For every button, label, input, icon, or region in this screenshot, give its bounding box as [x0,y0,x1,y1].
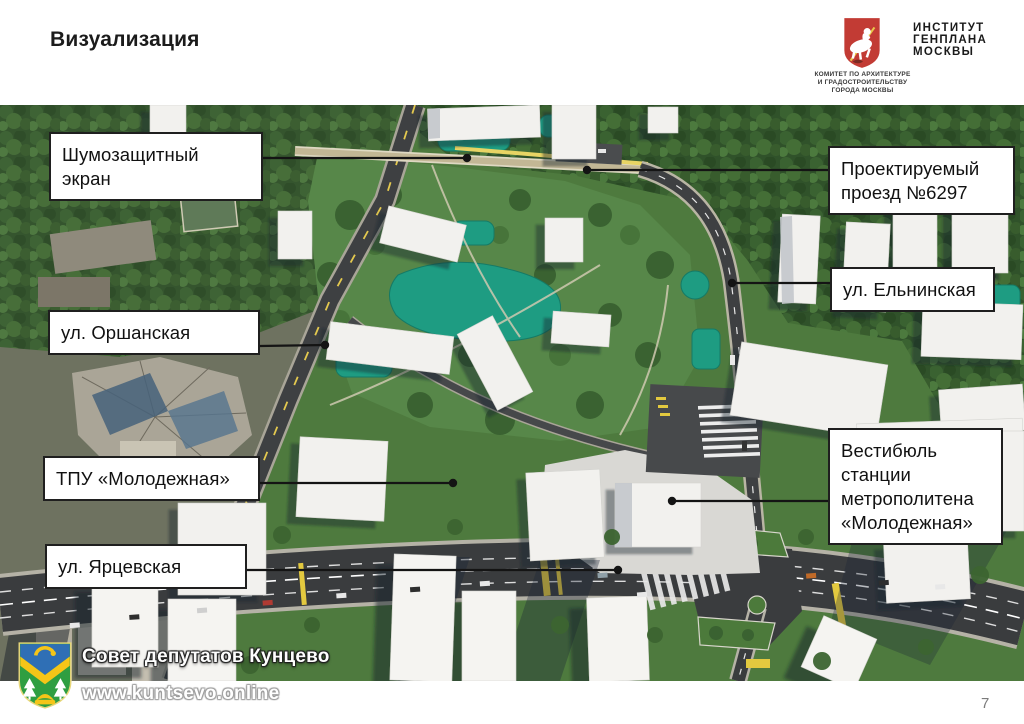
page-title: Визуализация [50,28,200,52]
website-url: www.kuntsevo.online [82,683,279,705]
map-visualization: Шумозащитный экран Проектируемый проезд … [0,105,1024,681]
slide: Визуализация КОМИТЕТ ПО АРХИТЕКТУРЕ И ГР… [0,0,1024,724]
moscow-coat-of-arms-icon [842,16,882,70]
callout-metro-vestibule: Вестибюль станции метрополитена «Молодеж… [828,428,1003,545]
header-logos: КОМИТЕТ ПО АРХИТЕКТУРЕ И ГРАДОСТРОИТЕЛЬС… [800,14,1010,98]
institute-genplan-logo-text: ИНСТИТУТ ГЕНПЛАНА МОСКВЫ [913,22,987,58]
callout-orshanskaya-street: ул. Оршанская [48,310,260,355]
council-title: Совет депутатов Кунцево [82,646,330,668]
callout-yartsevskaya-street: ул. Ярцевская [45,544,247,589]
committee-caption: КОМИТЕТ ПО АРХИТЕКТУРЕ И ГРАДОСТРОИТЕЛЬС… [790,71,935,95]
page-number: 7 [981,695,989,712]
callout-noise-screen: Шумозащитный экран [49,132,263,201]
callout-projected-driveway: Проектируемый проезд №6297 [828,146,1015,215]
callout-elninskaya-street: ул. Ельнинская [830,267,995,312]
kuntsevo-coat-of-arms-icon [16,641,74,709]
callout-tpu-molodezhnaya: ТПУ «Молодежная» [43,456,260,501]
